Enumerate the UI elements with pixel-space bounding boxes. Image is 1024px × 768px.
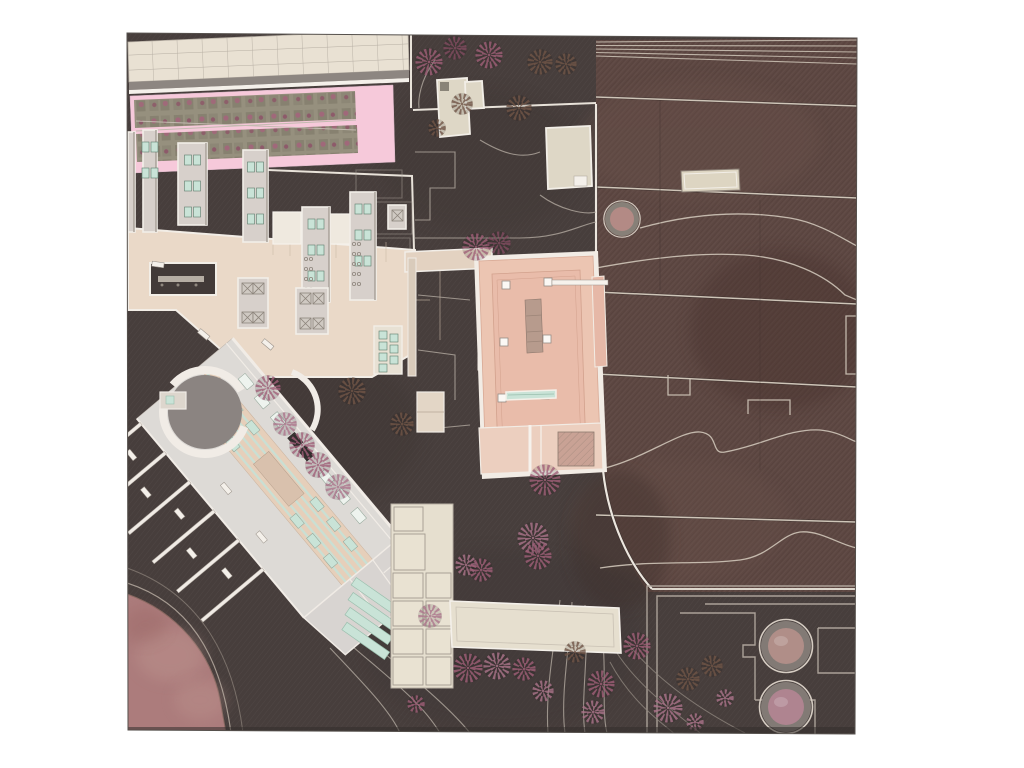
wing <box>178 143 207 225</box>
tree-rose <box>418 604 442 628</box>
tree-pink <box>469 558 493 582</box>
tree-brown <box>390 412 414 436</box>
tree-pink <box>407 695 425 713</box>
tree-rose <box>325 474 351 500</box>
water-tank <box>760 681 813 734</box>
wing <box>350 192 376 300</box>
water-tank <box>760 620 813 673</box>
site-plan-drawing <box>0 0 1024 768</box>
wing <box>128 132 135 232</box>
tree-brown <box>527 49 553 75</box>
tree-pink <box>305 452 331 478</box>
green-annex <box>374 326 402 374</box>
tree-pink <box>529 464 561 496</box>
tree-pink <box>453 653 483 683</box>
east-balcony <box>592 276 607 367</box>
wing-columns <box>238 278 268 328</box>
tree-rose <box>581 700 605 724</box>
tree-brown <box>701 655 723 677</box>
tree-brown <box>428 119 446 137</box>
tree-pink <box>623 632 651 660</box>
courtyard-west-wall <box>408 258 416 376</box>
wing-columns <box>296 288 328 334</box>
tree-brown <box>555 53 577 75</box>
tree-pink <box>462 233 490 261</box>
tree-pink <box>587 670 615 698</box>
salmon-building <box>474 251 608 479</box>
bridge-beam <box>552 280 608 285</box>
tree-rose <box>716 689 734 707</box>
tree-rose <box>273 412 297 436</box>
small-circular-tank <box>604 201 640 237</box>
tree-brown <box>338 377 366 405</box>
tree-pink <box>512 657 536 681</box>
tree-brown <box>564 641 586 663</box>
tree-pink <box>255 375 281 401</box>
tree-pink <box>524 542 552 570</box>
wing <box>142 130 158 232</box>
tree-brown <box>506 95 532 121</box>
entrance-notch <box>150 263 216 295</box>
tree-darkrose <box>443 36 467 60</box>
workshop-bar <box>450 601 621 653</box>
stair-slot <box>525 299 543 353</box>
plaza-annex-room <box>273 212 301 244</box>
site-plan-canvas: { "meta": { "title": "Architectural site… <box>0 0 1024 768</box>
tree-pink <box>415 48 443 76</box>
wing-columns <box>388 205 406 229</box>
tree-brown <box>451 93 473 115</box>
tree-darkrose <box>487 231 511 255</box>
wing <box>243 150 268 242</box>
tree-rose <box>653 693 683 723</box>
outbuilding-b <box>546 126 592 189</box>
tree-rose <box>483 652 511 680</box>
tree-pink <box>475 41 503 69</box>
tree-rose <box>532 680 554 702</box>
tree-brown <box>676 667 700 691</box>
